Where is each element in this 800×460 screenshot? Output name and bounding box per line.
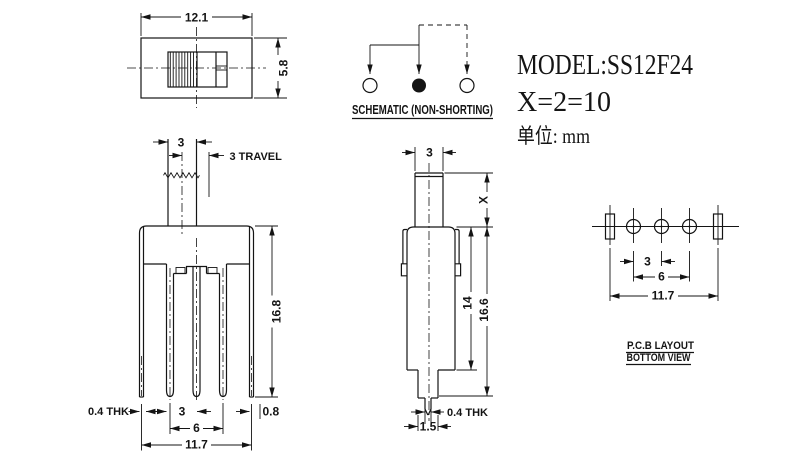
switch-body-side (407, 227, 455, 370)
side-thickness-label: 0.4 THK (447, 407, 488, 419)
side-total-height-dim: 16.6 (477, 298, 491, 322)
front-overall-dim: 11.7 (185, 438, 208, 452)
pcb-span-dim: 6 (658, 270, 665, 284)
knob-hatching (170, 53, 193, 87)
side-tip-width-dim: 1.5 (420, 420, 437, 434)
pcb-overall-dim: 11.7 (652, 289, 675, 303)
side-pin-tip (425, 409, 431, 415)
pcb-pitch-dim: 3 (644, 255, 651, 269)
right-clip (455, 230, 461, 276)
side-knob-width-dim: 3 (426, 146, 433, 160)
technical-drawing: 12.1 5.8 SCHEMATIC (NON-SHORTING) MODEL:… (0, 0, 800, 460)
schematic: SCHEMATIC (NON-SHORTING) (352, 25, 493, 119)
side-body-height-dim: 14 (461, 296, 475, 310)
terminal-3-circle (460, 79, 474, 93)
left-clip (401, 230, 407, 276)
front-height-dim: 16.8 (270, 299, 284, 323)
model-number: MODEL:SS12F24 (517, 50, 693, 81)
pcb-layout: 3 6 11.7 P.C.B LAYOUT BOTTOM VIEW (592, 205, 739, 365)
units-note: 单位: mm (517, 124, 590, 148)
top-view-width-dim: 12.1 (185, 11, 209, 25)
side-knob-height-dim: X (477, 196, 491, 204)
front-thickness-label: 0.4 THK (88, 406, 129, 418)
front-edge-dim: 0.8 (263, 405, 280, 419)
schematic-caption: SCHEMATIC (NON-SHORTING) (352, 103, 493, 117)
front-travel-label: 3 TRAVEL (230, 151, 283, 163)
front-span-dim: 6 (193, 421, 200, 435)
pcb-caption-line2: BOTTOM VIEW (627, 352, 691, 364)
top-view-height-dim: 5.8 (277, 59, 291, 76)
top-view: 12.1 5.8 (127, 10, 291, 108)
side-view: 3 X 0.4 THK (401, 146, 493, 434)
terminal-1-circle (363, 79, 377, 93)
terminal-common-circle (412, 79, 426, 93)
front-knob-width-dim: 3 (178, 136, 185, 150)
knob-break-line (164, 173, 200, 178)
front-pitch-dim: 3 (179, 405, 186, 419)
x-spec: X=2=10 (517, 87, 611, 118)
drawing-sheet: 12.1 5.8 SCHEMATIC (NON-SHORTING) MODEL:… (0, 0, 800, 460)
front-view: 3 3 TRAVEL 16.8 (88, 136, 284, 452)
pcb-caption-line1: P.C.B LAYOUT (627, 340, 694, 352)
title-block: MODEL:SS12F24 X=2=10 单位: mm (517, 50, 693, 148)
